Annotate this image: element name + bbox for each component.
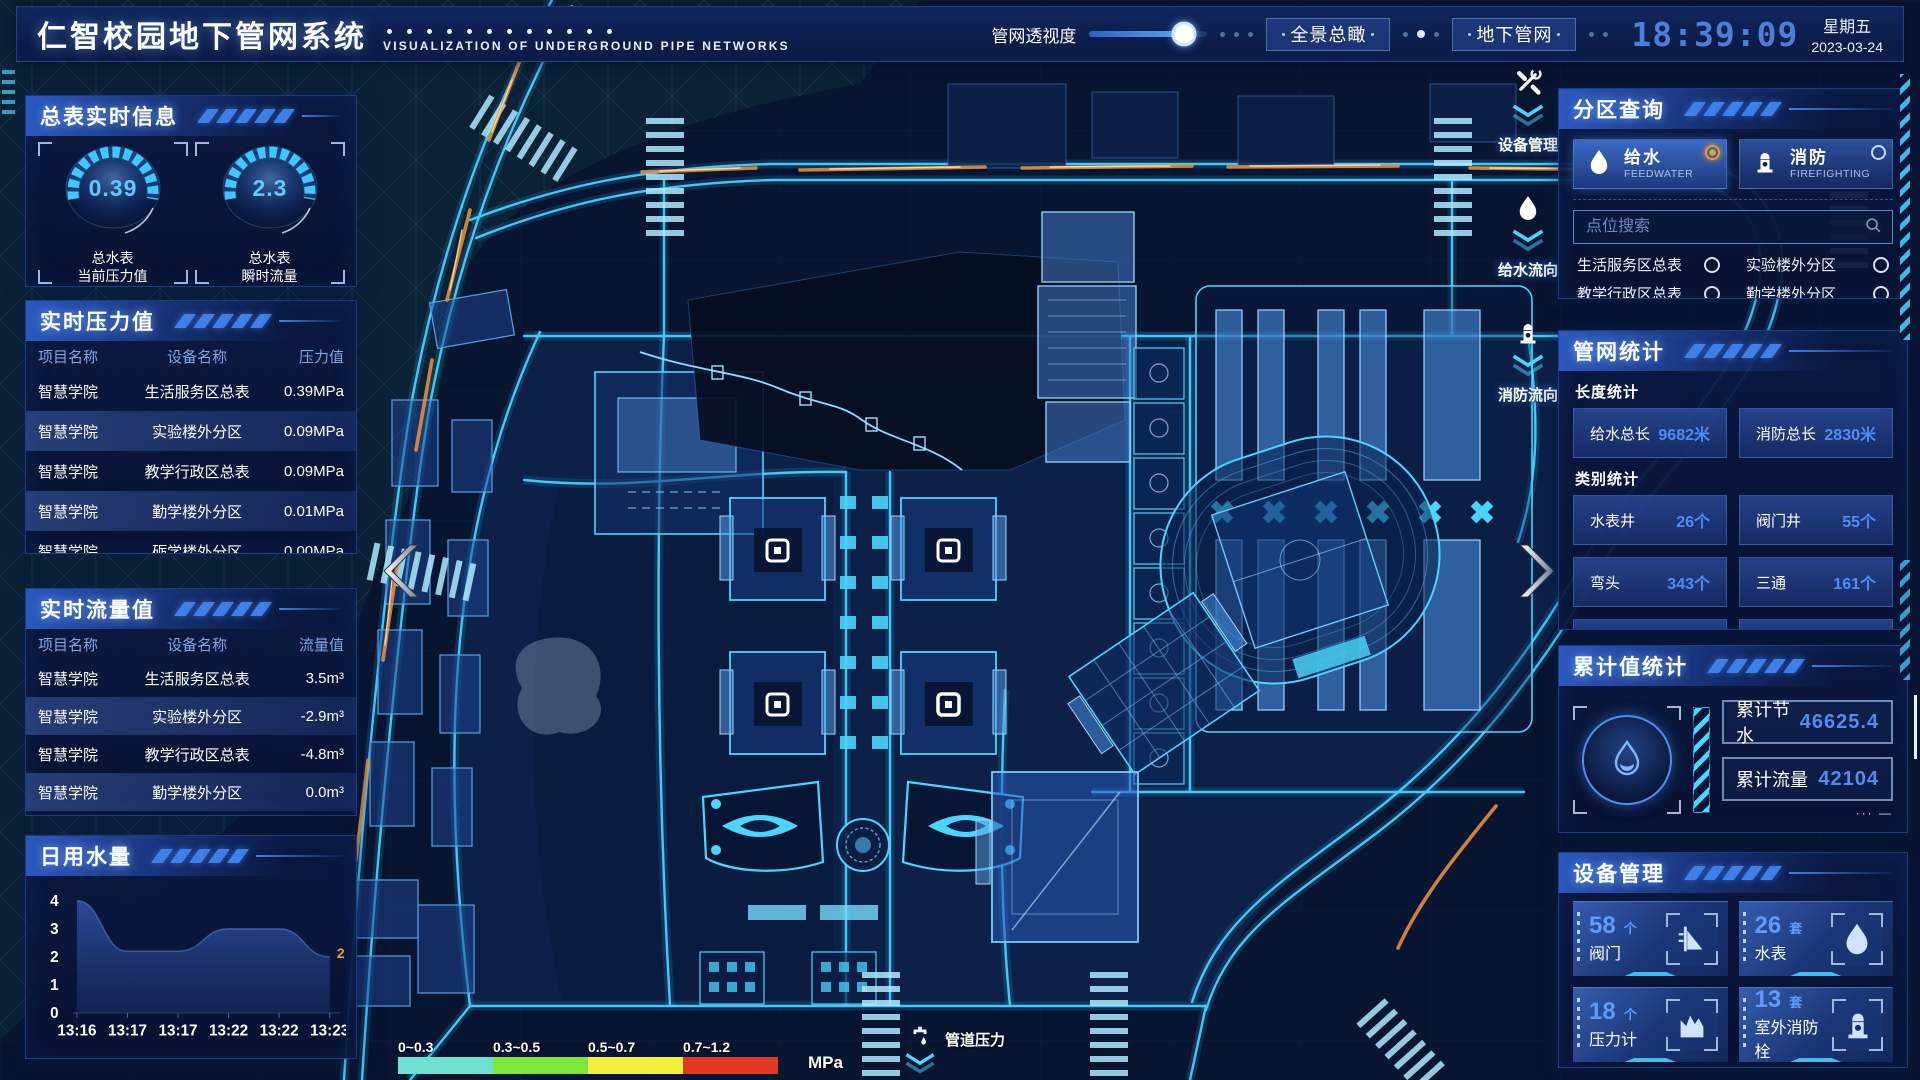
tab-firefighting[interactable]: 消防FIREFIGHTING bbox=[1739, 139, 1893, 189]
gauge: 0.39 总水表当前压力值 bbox=[38, 142, 188, 284]
svg-text:13:17: 13:17 bbox=[159, 1022, 198, 1039]
panel-header: 累计值统计 bbox=[1559, 646, 1907, 686]
table-row: 智慧学院勤学楼外分区0.0m³ bbox=[26, 773, 356, 811]
panel-header: 设备管理 bbox=[1559, 853, 1907, 893]
svg-text:13:23: 13:23 bbox=[310, 1022, 346, 1039]
device-label: 水表 bbox=[1755, 940, 1803, 964]
table-row: 智慧学院实验楼外分区0.09MPa bbox=[26, 411, 356, 451]
chevron-down-icon bbox=[1510, 229, 1546, 258]
table-cell: 智慧学院 bbox=[38, 421, 133, 442]
flow-table: 项目名称设备名称流量值智慧学院生活服务区总表3.5m³智慧学院实验楼外分区-2.… bbox=[26, 629, 356, 816]
slider-fill bbox=[1089, 31, 1183, 37]
radio-icon bbox=[1704, 257, 1720, 273]
stat-chip: 给水总长 9682米 bbox=[1573, 408, 1727, 458]
clock: 18:39:09 bbox=[1631, 15, 1798, 54]
scrollbar-segment[interactable] bbox=[1914, 695, 1917, 759]
legend-range-label: 0.3~0.5 bbox=[493, 1039, 588, 1055]
weekday: 星期五 bbox=[1823, 13, 1871, 37]
panel-title: 管网统计 bbox=[1573, 336, 1665, 366]
radio-icon bbox=[1705, 145, 1720, 160]
stat-value: 26个 bbox=[1676, 508, 1710, 532]
dashboard: 仁智校园地下管网系统 VISUALIZATION OF UNDERGROUND … bbox=[0, 0, 1920, 1080]
panel-title: 分区查询 bbox=[1573, 94, 1665, 124]
device-label: 室外消防栓 bbox=[1755, 1014, 1833, 1062]
slider-thumb[interactable] bbox=[1171, 22, 1196, 47]
panel-header: 日用水量 bbox=[26, 836, 356, 876]
cumulative-row: 累计流量 42104 bbox=[1722, 757, 1893, 801]
table-cell: 智慧学院 bbox=[38, 706, 133, 727]
table-cell: 生活服务区总表 bbox=[133, 668, 262, 689]
gauge-row: 0.39 总水表当前压力值 2.3 总水表瞬时流量 bbox=[26, 136, 356, 284]
map-tool-label: 设备管理 bbox=[1498, 134, 1558, 155]
daily-usage-chart: 0123413:1613:1713:1713:2213:2213:23 2 bbox=[26, 876, 356, 1053]
tab-label: 消防 bbox=[1790, 148, 1870, 168]
search-input[interactable] bbox=[1584, 217, 1864, 237]
table-cell: -4.8m³ bbox=[261, 746, 344, 763]
svg-text:1: 1 bbox=[50, 977, 59, 994]
table-cell: 实验楼外分区 bbox=[133, 421, 262, 442]
cumulative-value: 42104 bbox=[1818, 768, 1879, 791]
zone-tabs: 给水FEEDWATER 消防FIREFIGHTING bbox=[1559, 129, 1907, 189]
water-badge bbox=[1573, 706, 1681, 814]
pipe-pressure-label: 管道压力 bbox=[945, 1029, 1005, 1050]
divider bbox=[1573, 199, 1893, 200]
table-cell: 智慧学院 bbox=[38, 461, 133, 482]
panel-header: 管网统计 bbox=[1559, 331, 1907, 371]
date: 2023-03-24 bbox=[1811, 39, 1883, 55]
svg-text:13:17: 13:17 bbox=[108, 1022, 147, 1039]
panel-header: 实时压力值 bbox=[26, 301, 356, 341]
zone-list: 生活服务区总表 实验楼外分区 教学行政区总表 勤学楼外分区 砺学楼外分区 宿舍区… bbox=[1559, 244, 1907, 299]
stat-value: 9682米 bbox=[1658, 421, 1710, 445]
stat-value: 55个 bbox=[1842, 508, 1876, 532]
stat-chip: 三通 161个 bbox=[1739, 557, 1893, 607]
map-toolbar: 设备管理 给水流向 消防流向 bbox=[1488, 66, 1568, 405]
table-header: 项目名称设备名称压力值 bbox=[26, 341, 356, 371]
pressure-gauge-icon bbox=[1666, 999, 1718, 1051]
overview-button[interactable]: 全景总瞰 bbox=[1266, 18, 1390, 51]
radio-icon bbox=[1704, 286, 1720, 300]
clipped-stats-row bbox=[1559, 619, 1907, 630]
table-row: 智慧学院生活服务区总表0.39MPa bbox=[26, 371, 356, 411]
cumulative-rows: 累计节水 46625.4 累计流量 42104··· — bbox=[1722, 700, 1893, 820]
table-cell: 0.09MPa bbox=[261, 463, 344, 480]
stat-chip: 水表井 26个 bbox=[1573, 495, 1727, 545]
device-count: 26套 bbox=[1755, 914, 1803, 938]
slash-decoration bbox=[1689, 102, 1777, 116]
underground-button[interactable]: 地下管网 bbox=[1452, 18, 1576, 51]
table-cell: 3.5m³ bbox=[261, 670, 344, 687]
device-count: 18个 bbox=[1589, 1000, 1637, 1024]
waterdrop-icon bbox=[1584, 147, 1614, 182]
table-row: 智慧学院砺学楼外分区0.00MPa bbox=[26, 531, 356, 554]
panel-title: 日用水量 bbox=[40, 841, 132, 871]
table-cell: 勤学楼外分区 bbox=[133, 782, 262, 803]
zone-label: 勤学楼外分区 bbox=[1746, 283, 1836, 299]
hydrant-icon bbox=[1513, 318, 1543, 353]
panel-title: 实时流量值 bbox=[40, 594, 155, 624]
map-tool-消防流向[interactable]: 消防流向 bbox=[1488, 318, 1568, 405]
hydrant-icon bbox=[1750, 147, 1780, 182]
water-meter-icon bbox=[1831, 913, 1883, 965]
device-count: 58个 bbox=[1589, 914, 1637, 938]
zone-label: 教学行政区总表 bbox=[1577, 283, 1682, 299]
radio-icon bbox=[1873, 257, 1889, 273]
zone-option[interactable]: 教学行政区总表 bbox=[1577, 279, 1720, 299]
radio-icon bbox=[1873, 286, 1889, 300]
table-cell: 0.0m³ bbox=[261, 784, 344, 801]
chevron-down-icon bbox=[1510, 104, 1546, 133]
stat-label: 弯头 bbox=[1590, 572, 1620, 593]
outdoor-hydrant-icon bbox=[1832, 999, 1883, 1051]
panel-title: 设备管理 bbox=[1573, 858, 1665, 888]
hazard-stripe-decoration bbox=[1900, 560, 1910, 680]
stat-label: 三通 bbox=[1756, 572, 1786, 593]
table-row: 智慧学院砺学楼外分区2.3m³ bbox=[26, 811, 356, 816]
table-cell: 0.00MPa bbox=[261, 543, 344, 555]
map-tool-设备管理[interactable]: 设备管理 bbox=[1488, 66, 1568, 155]
slash-decoration bbox=[156, 849, 244, 863]
date-block: 星期五 2023-03-24 bbox=[1811, 13, 1883, 55]
map-tool-label: 给水流向 bbox=[1498, 259, 1558, 280]
table-cell: 0.39MPa bbox=[261, 383, 344, 400]
pan-right-arrow[interactable] bbox=[1512, 542, 1558, 605]
panel-devices: 设备管理 58个 阀门 26套 水表 18个 压力计 13套 室外消防栓 bbox=[1558, 852, 1908, 1068]
slash-decoration bbox=[179, 314, 267, 328]
slash-decoration bbox=[179, 602, 267, 616]
dots-decoration bbox=[1403, 30, 1439, 38]
stat-chip: 阀门井 55个 bbox=[1739, 495, 1893, 545]
panel-header: 分区查询 bbox=[1559, 89, 1907, 129]
wrench-icon bbox=[1512, 66, 1544, 103]
device-card[interactable]: 26套 水表 bbox=[1739, 901, 1894, 976]
waterdrop-icon bbox=[1513, 193, 1543, 228]
svg-text:2.3: 2.3 bbox=[252, 175, 287, 201]
device-card[interactable]: 13套 室外消防栓 bbox=[1739, 987, 1894, 1062]
zone-option[interactable]: 实验楼外分区 bbox=[1746, 250, 1889, 279]
gauge-label: 总水表瞬时流量 bbox=[195, 249, 345, 285]
svg-text:13:16: 13:16 bbox=[57, 1022, 96, 1039]
cumulative-content: 累计节水 46625.4 累计流量 42104··· — bbox=[1559, 686, 1907, 820]
panel-cumulative: 累计值统计 累计节水 46625.4 累计流量 42104··· — bbox=[1558, 645, 1908, 833]
legend-swatch bbox=[493, 1057, 588, 1074]
table-cell: 智慧学院 bbox=[38, 381, 133, 402]
svg-text:2: 2 bbox=[337, 946, 345, 962]
gauge-label: 总水表当前压力值 bbox=[38, 249, 188, 285]
pan-left-arrow[interactable] bbox=[380, 542, 426, 605]
table-row: 智慧学院生活服务区总表3.5m³ bbox=[26, 659, 356, 697]
dots-decoration bbox=[1589, 32, 1608, 37]
svg-text:2: 2 bbox=[50, 949, 59, 966]
length-stats-title: 长度统计 bbox=[1559, 371, 1907, 408]
zone-label: 实验楼外分区 bbox=[1746, 254, 1836, 275]
panel-daily-usage: 日用水量 0123413:1613:1713:1713:2213:2213:23… bbox=[25, 835, 357, 1059]
dots-decoration bbox=[1220, 32, 1253, 37]
panel-zone-query: 分区查询 给水FEEDWATER 消防FIREFIGHTING 生活服务区总表 … bbox=[1558, 88, 1908, 299]
category-stats: 水表井 26个 阀门井 55个 弯头 343个 三通 161个 bbox=[1559, 495, 1907, 607]
device-card[interactable]: 18个 压力计 bbox=[1573, 987, 1728, 1062]
panel-pipe-stats: 管网统计 长度统计 给水总长 9682米 消防总长 2830米 类别统计 水表井… bbox=[1558, 330, 1908, 630]
length-stats: 给水总长 9682米 消防总长 2830米 bbox=[1559, 408, 1907, 458]
panel-title: 总表实时信息 bbox=[40, 101, 178, 131]
panel-header: 实时流量值 bbox=[26, 589, 356, 629]
pond bbox=[516, 637, 602, 734]
table-cell: 生活服务区总表 bbox=[133, 381, 262, 402]
title-dots-decoration bbox=[383, 29, 790, 34]
slash-decoration bbox=[1689, 344, 1777, 358]
legend-range-label: 0.7~1.2 bbox=[683, 1039, 778, 1055]
slash-decoration bbox=[1712, 659, 1800, 673]
table-cell: 实验楼外分区 bbox=[133, 706, 262, 727]
table-cell: 教学行政区总表 bbox=[133, 744, 262, 765]
legend-range-label: 0~0.3 bbox=[398, 1039, 493, 1055]
stat-label: 给水总长 bbox=[1590, 423, 1650, 444]
svg-text:0: 0 bbox=[50, 1005, 59, 1022]
panel-title: 实时压力值 bbox=[40, 306, 155, 336]
panel-pressure: 实时压力值 项目名称设备名称压力值智慧学院生活服务区总表0.39MPa智慧学院实… bbox=[25, 300, 357, 554]
cumulative-value: 46625.4 bbox=[1800, 711, 1879, 734]
svg-text:4: 4 bbox=[50, 893, 59, 910]
search-box bbox=[1573, 210, 1893, 244]
radio-icon bbox=[1871, 145, 1886, 160]
table-cell: 智慧学院 bbox=[38, 782, 133, 803]
app-subtitle: VISUALIZATION OF UNDERGROUND PIPE NETWOR… bbox=[383, 39, 790, 53]
stat-chip: 消防总长 2830米 bbox=[1739, 408, 1893, 458]
table-cell: 智慧学院 bbox=[38, 541, 133, 555]
legend-swatch bbox=[398, 1057, 493, 1074]
svg-text:13:22: 13:22 bbox=[209, 1022, 248, 1039]
panel-header: 总表实时信息 bbox=[26, 96, 356, 136]
tab-sublabel: FEEDWATER bbox=[1624, 168, 1693, 180]
panel-flow: 实时流量值 项目名称设备名称流量值智慧学院生活服务区总表3.5m³智慧学院实验楼… bbox=[25, 588, 357, 816]
cumulative-label: 累计节水 bbox=[1736, 696, 1800, 748]
zone-label: 生活服务区总表 bbox=[1577, 254, 1682, 275]
zone-option[interactable]: 勤学楼外分区 bbox=[1746, 279, 1889, 299]
table-row: 智慧学院教学行政区总表-4.8m³ bbox=[26, 735, 356, 773]
table-cell: -2.9m³ bbox=[261, 708, 344, 725]
tab-sublabel: FIREFIGHTING bbox=[1790, 168, 1870, 180]
table-cell: 智慧学院 bbox=[38, 744, 133, 765]
slash-decoration bbox=[1689, 866, 1777, 880]
northeast-tower bbox=[1038, 212, 1136, 462]
legend-unit: MPa bbox=[808, 1053, 843, 1073]
stat-chip: 弯头 343个 bbox=[1573, 557, 1727, 607]
chevron-down-icon bbox=[1510, 354, 1546, 383]
hazard-stripe-decoration bbox=[1900, 74, 1910, 340]
stat-value: 161个 bbox=[1833, 570, 1876, 594]
stat-value: 2830米 bbox=[1824, 421, 1876, 445]
stat-label: 水表井 bbox=[1590, 510, 1635, 531]
header-bar: 仁智校园地下管网系统 VISUALIZATION OF UNDERGROUND … bbox=[16, 6, 1904, 62]
chevron-down-icon bbox=[903, 1053, 937, 1080]
table-cell: 教学行政区总表 bbox=[133, 461, 262, 482]
svg-text:3: 3 bbox=[50, 921, 59, 938]
search-icon[interactable] bbox=[1864, 216, 1882, 239]
stat-label: 消防总长 bbox=[1756, 423, 1816, 444]
stat-value: 343个 bbox=[1667, 570, 1710, 594]
device-label: 阀门 bbox=[1589, 940, 1637, 964]
transparency-slider[interactable] bbox=[1089, 31, 1207, 37]
table-header: 项目名称设备名称流量值 bbox=[26, 629, 356, 659]
legend-swatch bbox=[683, 1057, 778, 1074]
table-cell: 勤学楼外分区 bbox=[133, 501, 262, 522]
cumulative-label: 累计流量 bbox=[1736, 766, 1808, 792]
pressure-table: 项目名称设备名称压力值智慧学院生活服务区总表0.39MPa智慧学院实验楼外分区0… bbox=[26, 341, 356, 554]
gauge: 2.3 总水表瞬时流量 bbox=[195, 142, 345, 284]
device-count: 13套 bbox=[1755, 988, 1833, 1012]
table-cell: 智慧学院 bbox=[38, 501, 133, 522]
transparency-label: 管网透视度 bbox=[991, 22, 1076, 47]
table-cell: 0.01MPa bbox=[261, 503, 344, 520]
legend-range-label: 0.5~0.7 bbox=[588, 1039, 683, 1055]
hazard-stripe-decoration bbox=[1693, 707, 1710, 813]
device-card[interactable]: 58个 阀门 bbox=[1573, 901, 1728, 976]
auditorium bbox=[976, 772, 1138, 942]
central-fountain bbox=[837, 819, 889, 871]
table-cell: 0.09MPa bbox=[261, 423, 344, 440]
svg-text:13:22: 13:22 bbox=[260, 1022, 299, 1039]
waterdrop-icon bbox=[1607, 738, 1647, 783]
table-row: 智慧学院教学行政区总表0.09MPa bbox=[26, 451, 356, 491]
tab-feedwater[interactable]: 给水FEEDWATER bbox=[1573, 139, 1727, 189]
svg-text:0.39: 0.39 bbox=[88, 175, 137, 201]
pressure-legend: 0~0.30.3~0.50.5~0.70.7~1.2 MPa 管道压力 bbox=[398, 1024, 1005, 1074]
panel-title: 累计值统计 bbox=[1573, 651, 1688, 681]
zone-option[interactable]: 生活服务区总表 bbox=[1577, 250, 1720, 279]
valve-icon bbox=[1666, 913, 1718, 965]
table-cell: 砺学楼外分区 bbox=[133, 541, 262, 555]
pipe-pressure-toggle[interactable]: 管道压力 bbox=[903, 1024, 1005, 1080]
cumulative-row: 累计节水 46625.4 bbox=[1722, 700, 1893, 744]
map-tool-给水流向[interactable]: 给水流向 bbox=[1488, 193, 1568, 280]
table-row: 智慧学院实验楼外分区-2.9m³ bbox=[26, 697, 356, 735]
device-grid: 58个 阀门 26套 水表 18个 压力计 13套 室外消防栓 bbox=[1559, 893, 1907, 1062]
faucet-icon bbox=[908, 1024, 932, 1053]
dots-decoration: ··· — bbox=[1856, 806, 1893, 820]
category-stats-title: 类别统计 bbox=[1559, 458, 1907, 495]
slash-decoration bbox=[202, 109, 290, 123]
stat-label: 阀门井 bbox=[1756, 510, 1801, 531]
device-label: 压力计 bbox=[1589, 1026, 1637, 1050]
panel-master-meter: 总表实时信息 0.39 总水表当前压力值 2.3 总水表瞬时流量 bbox=[25, 95, 357, 287]
table-cell: 智慧学院 bbox=[38, 668, 133, 689]
tab-label: 给水 bbox=[1624, 148, 1693, 168]
legend-scale: 0~0.30.3~0.50.5~0.70.7~1.2 bbox=[398, 1039, 778, 1074]
brand: 仁智校园地下管网系统 VISUALIZATION OF UNDERGROUND … bbox=[37, 12, 790, 56]
legend-swatch bbox=[588, 1057, 683, 1074]
map-tool-label: 消防流向 bbox=[1498, 384, 1558, 405]
app-title: 仁智校园地下管网系统 bbox=[37, 12, 367, 56]
table-row: 智慧学院勤学楼外分区0.01MPa bbox=[26, 491, 356, 531]
